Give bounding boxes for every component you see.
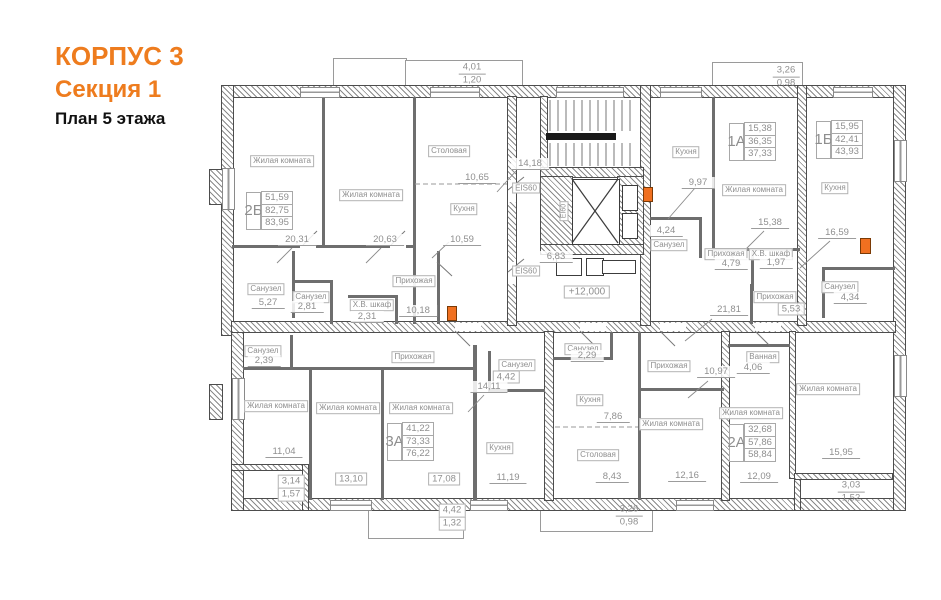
room-label: Кухня (486, 442, 513, 454)
dimension-label: 14,11 (470, 381, 507, 393)
apartment-area-value: 73,33 (402, 435, 434, 449)
title-block: КОРПУС 3 Секция 1 План 5 этажа (55, 40, 184, 132)
apartment-area-value: 32,68 (744, 423, 776, 437)
apartment-area-value: 82,75 (261, 204, 293, 218)
apartment-area-value: 42,41 (831, 133, 863, 147)
apartment-area-value: 15,38 (744, 122, 776, 136)
room-label: Жилая комната (244, 400, 308, 412)
balcony-dimension: 3,141,57 (278, 475, 305, 502)
balcony-dimension: 4,421,32 (439, 504, 466, 531)
floorplan-page: КОРПУС 3 Секция 1 План 5 этажа Жилая ком… (0, 0, 941, 600)
apartment-unit: 2Б (246, 192, 261, 230)
fire-rating-label: EIS60 (512, 266, 540, 277)
balcony-area-reduced: 0,98 (773, 78, 800, 90)
room-label: Кухня (576, 394, 603, 406)
room-area: 10,65 (458, 172, 496, 184)
apartment-unit: 1Б (816, 121, 831, 159)
dimension-label: 6,83 (540, 251, 573, 263)
balcony-area-reduced: 1,52 (838, 493, 865, 505)
room-label: Жилая комната (722, 184, 786, 196)
balcony-dimension: 4,011,20 (459, 62, 486, 87)
room-label: Столовая (428, 145, 470, 157)
balcony-area-total: 3,14 (278, 475, 305, 489)
room-label: Санузел (247, 283, 284, 295)
apartment-stamp: 1Б15,9542,4143,93 (816, 121, 863, 159)
room-label: Кухня (821, 182, 848, 194)
room-label: Жилая комната (389, 402, 453, 414)
room-label: Прихожая (647, 360, 690, 372)
plan-title: План 5 этажа (55, 106, 184, 132)
elevator-rating-label: EI60 (560, 201, 569, 221)
room-label: Прихожая (753, 291, 796, 303)
room-area: 4,79 (715, 258, 748, 270)
apartment-stamp: 3А41,2273,3376,22 (387, 423, 434, 461)
room-label: Прихожая (392, 275, 435, 287)
room-area: 10,18 (399, 305, 437, 317)
room-area: 15,38 (751, 217, 789, 229)
apartment-area-value: 36,35 (744, 135, 776, 149)
balcony-area-total: 3,03 (838, 480, 865, 493)
dimension-label: 14,18 (511, 158, 549, 170)
room-area: 7,86 (597, 411, 630, 423)
room-area: 17,08 (428, 473, 460, 486)
section-title: Секция 1 (55, 74, 184, 106)
apartment-stamp: 2Б51,5982,7583,95 (246, 192, 293, 230)
room-area: 2,31 (351, 311, 384, 323)
balcony-area-total: 3,26 (616, 504, 643, 517)
balcony-area-reduced: 1,57 (278, 488, 305, 502)
room-area: 11,19 (489, 472, 526, 484)
balcony-area-total: 4,42 (439, 504, 466, 518)
room-area: 20,63 (366, 234, 404, 246)
room-area: 16,59 (818, 227, 856, 239)
room-label: Столовая (577, 449, 619, 461)
apartment-area-value: 57,86 (744, 436, 776, 450)
apartment-area-value: 41,22 (402, 422, 434, 436)
room-label: Санузел (498, 359, 535, 371)
room-label: Кухня (672, 146, 699, 158)
room-area: 5,27 (252, 297, 285, 309)
dimension-label: 21,81 (710, 304, 748, 316)
room-label: Кухня (450, 203, 477, 215)
elevation-mark: +12,000 (564, 286, 610, 299)
room-area: 2,39 (248, 355, 281, 367)
room-area: 10,59 (443, 234, 481, 246)
room-label: Прихожая (391, 351, 434, 363)
apartment-stamp: 2А32,6857,8658,84 (729, 424, 776, 462)
room-area: 8,43 (596, 471, 629, 483)
room-area: 12,16 (668, 470, 706, 482)
fire-rating-label: EIS60 (512, 183, 540, 194)
room-label: Жилая комната (719, 407, 783, 419)
room-label: Жилая комната (316, 402, 380, 414)
room-area: 4,34 (834, 292, 867, 304)
room-area: 20,31 (278, 234, 316, 246)
apartment-unit: 3А (387, 423, 402, 461)
room-label: Жилая комната (639, 418, 703, 430)
apartment-area-value: 15,95 (831, 120, 863, 134)
apartment-area-value: 58,84 (744, 448, 776, 462)
room-area: 9,97 (682, 177, 715, 189)
room-area: 4,06 (737, 362, 770, 374)
room-area: 11,04 (265, 446, 302, 458)
fire-hydrant-icon (643, 187, 653, 202)
balcony-dimension: 3,260,98 (773, 65, 800, 90)
balcony-dimension: 3,031,52 (838, 480, 865, 505)
stair-landing-bar (546, 133, 616, 140)
balcony-area-total: 3,26 (773, 65, 800, 78)
room-label: Жилая комната (339, 189, 403, 201)
room-area: 2,29 (571, 350, 604, 362)
apartment-area-value: 76,22 (402, 447, 434, 461)
apartment-unit: 1А (729, 123, 744, 161)
balcony-dimension: 3,260,98 (616, 504, 643, 529)
apartment-stamp: 1А15,3836,3537,33 (729, 123, 776, 161)
building-title: КОРПУС 3 (55, 40, 184, 74)
room-area: 2,81 (291, 301, 324, 313)
apartment-area-value: 37,33 (744, 147, 776, 161)
room-area: 5,53 (778, 303, 805, 316)
apartment-area-value: 51,59 (261, 191, 293, 205)
room-area: 1,97 (760, 257, 793, 269)
dimension-label: 10,97 (697, 366, 735, 378)
room-area: 13,10 (335, 473, 367, 486)
balcony-area-reduced: 0,98 (616, 517, 643, 529)
fire-hydrant-icon (860, 238, 871, 254)
room-area: 4,24 (650, 225, 683, 237)
apartment-area-value: 43,93 (831, 145, 863, 159)
balcony-area-reduced: 1,20 (459, 75, 486, 87)
room-label: Жилая комната (796, 383, 860, 395)
apartment-area-value: 83,95 (261, 216, 293, 230)
room-label: Х.В. шкаф (350, 299, 394, 311)
room-label: Санузел (650, 239, 687, 251)
apartment-unit: 2А (729, 424, 744, 462)
balcony-area-reduced: 1,32 (439, 517, 466, 531)
fire-hydrant-icon (447, 306, 457, 321)
room-area: 15,95 (822, 447, 860, 459)
balcony-area-total: 4,01 (459, 62, 486, 75)
room-label: Жилая комната (250, 155, 314, 167)
room-area: 12,09 (740, 471, 778, 483)
